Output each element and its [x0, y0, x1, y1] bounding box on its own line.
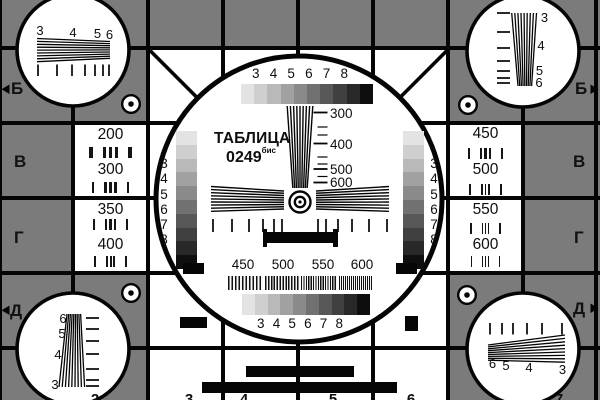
burst-bar — [103, 147, 106, 158]
grid-line-vertical — [221, 0, 225, 400]
cell-label-500: 500 — [448, 162, 523, 178]
grayscale-step — [176, 145, 197, 159]
grayscale-step — [176, 241, 197, 255]
corner-bl-num-6: 6 — [57, 312, 69, 325]
freq-label-550: 550 — [309, 258, 337, 272]
scale-number: 7 — [157, 218, 171, 232]
scale-number: 8 — [157, 233, 171, 247]
right-gray-numbers: 345678 — [427, 157, 441, 247]
column-digit-bottom: 2 — [87, 392, 103, 400]
burst-pattern-500 — [448, 184, 523, 195]
wedge-label-300: 300 — [330, 107, 353, 121]
scale-number: 4 — [157, 172, 171, 186]
grayscale-step — [357, 294, 370, 315]
scale-number: 5 — [157, 188, 171, 202]
grating-500 — [265, 276, 300, 290]
corner-br-num-4: 4 — [523, 361, 535, 374]
column-digit-bottom: 4 — [236, 392, 252, 400]
grayscale-right — [403, 131, 424, 269]
corner-tl-num-5: 5 — [92, 27, 104, 40]
grid-line-vertical — [296, 0, 300, 400]
wedge-label-400: 400 — [330, 138, 353, 152]
wedge-line — [75, 314, 76, 387]
grayscale-step — [403, 241, 424, 255]
burst-bar — [114, 219, 116, 230]
grayscale-step — [242, 294, 255, 315]
bullseye-bottom-right — [458, 286, 476, 304]
grid-line-horizontal — [0, 121, 600, 125]
burst-bar — [500, 184, 502, 195]
card-number-suffix: бис — [262, 146, 276, 155]
burst-bar — [488, 223, 490, 234]
corner-tr-num-6: 6 — [533, 76, 545, 89]
scale-number: 4 — [427, 172, 441, 186]
grayscale-step — [281, 84, 294, 104]
grating-600 — [339, 276, 372, 290]
row-letter-left-g: Г — [14, 229, 24, 246]
burst-bar — [488, 256, 489, 267]
grayscale-step — [403, 214, 424, 228]
burst-bar — [92, 182, 95, 193]
arrow-left-d-icon — [2, 306, 10, 316]
corner-tl-num-4: 4 — [67, 26, 79, 39]
cell-label-600: 600 — [448, 237, 523, 253]
burst-bar — [482, 256, 483, 267]
grayscale-step — [403, 172, 424, 186]
grid-line-vertical — [521, 0, 525, 400]
grayscale-step — [403, 159, 424, 173]
bullseye-top-left — [122, 95, 140, 113]
burst-pattern-350 — [73, 219, 148, 230]
burst-bar — [125, 256, 127, 267]
corner-bl-num-4: 4 — [52, 348, 64, 361]
burst-bar — [109, 182, 112, 193]
grayscale-step — [403, 200, 424, 214]
scale-number: 3 — [252, 67, 260, 81]
burst-bar — [481, 184, 483, 195]
corner-tr-num-4: 4 — [535, 39, 547, 52]
burst-bar — [110, 256, 112, 267]
grid-line-horizontal — [0, 346, 600, 350]
burst-bar — [115, 147, 118, 158]
grayscale-left — [176, 131, 197, 269]
scale-number: 4 — [270, 67, 278, 81]
grayscale-step — [176, 159, 197, 173]
row-letter-right-v: В — [573, 153, 585, 170]
black-rect-left-lower — [180, 317, 207, 328]
burst-bar — [104, 182, 107, 193]
grayscale-step — [176, 172, 197, 186]
burst-bar — [113, 256, 115, 267]
burst-bar — [106, 256, 108, 267]
cell-label-450: 450 — [448, 126, 523, 142]
scale-number: 3 — [427, 157, 441, 171]
burst-bar — [470, 223, 472, 234]
wedge-line — [79, 314, 82, 387]
center-bar-cap-right — [333, 229, 338, 247]
scale-number: 5 — [287, 67, 295, 81]
grayscale-step — [280, 294, 293, 315]
grayscale-step — [320, 84, 333, 104]
grayscale-step — [306, 294, 319, 315]
column-digit-top: 2 — [102, 0, 118, 3]
burst-bar — [93, 219, 95, 230]
burst-bar — [485, 184, 487, 195]
scale-number: 7 — [427, 218, 441, 232]
black-square-left-mid — [183, 263, 204, 274]
burst-bar — [488, 184, 490, 195]
grayscale-step — [403, 131, 424, 145]
burst-bar — [109, 219, 111, 230]
arrow-left-b-icon — [2, 85, 10, 95]
column-digit-bottom: 3 — [181, 392, 197, 400]
wedge-line — [81, 314, 85, 387]
corner-br-num-6: 6 — [487, 357, 499, 370]
corner-tr-num-3: 3 — [539, 11, 551, 24]
grayscale-step — [347, 84, 360, 104]
bottom-scale-numbers: 345678 — [257, 317, 343, 331]
freq-label-500: 500 — [269, 258, 297, 272]
card-title-block: ТАБЛИЦА 0249бис — [214, 131, 288, 166]
bullseye-top-right — [459, 96, 477, 114]
corner-br-num-3: 3 — [557, 363, 569, 376]
grid-line-vertical — [594, 0, 598, 400]
burst-pattern-550 — [448, 223, 523, 234]
burst-bar — [482, 223, 484, 234]
burst-bar — [485, 256, 486, 267]
grayscale-step — [254, 84, 267, 104]
cell-label-300: 300 — [73, 162, 148, 178]
grid-line-vertical — [71, 0, 75, 400]
top-scale-numbers: 345678 — [252, 67, 348, 81]
burst-bar — [94, 256, 96, 267]
column-digit-bottom: 6 — [403, 392, 419, 400]
row-letter-left-d: Д — [10, 302, 22, 319]
scale-number: 7 — [323, 67, 331, 81]
grid-line-horizontal — [0, 196, 600, 200]
grating-450 — [228, 276, 263, 290]
grayscale-step — [176, 186, 197, 200]
burst-bar — [501, 148, 503, 159]
burst-bar — [128, 147, 131, 158]
grayscale-step — [403, 145, 424, 159]
grid-line-horizontal — [0, 271, 600, 275]
grayscale-step — [255, 294, 268, 315]
wedge-line — [488, 355, 565, 356]
corner-br-num-5: 5 — [500, 359, 512, 372]
grayscale-step — [293, 294, 306, 315]
row-letter-right-b: Б — [575, 80, 587, 97]
cell-label-350: 350 — [73, 202, 148, 218]
grid-line-vertical — [146, 0, 150, 400]
burst-bar — [480, 148, 482, 159]
column-digit-top: 6 — [402, 0, 418, 3]
row-letter-left-b: Б — [11, 80, 23, 97]
scale-number: 6 — [157, 203, 171, 217]
wedge-line — [488, 335, 565, 345]
scale-number: 3 — [257, 317, 265, 331]
cell-label-200: 200 — [73, 127, 148, 143]
wedge-line — [77, 314, 78, 387]
scale-number: 5 — [288, 317, 296, 331]
scale-number: 8 — [427, 233, 441, 247]
grid-line-vertical — [0, 0, 2, 400]
grayscale-step — [176, 214, 197, 228]
cell-label-550: 550 — [448, 202, 523, 218]
corner-bl-num-5: 5 — [56, 327, 68, 340]
grayscale-step — [268, 294, 281, 315]
card-title: ТАБЛИЦА — [214, 131, 288, 147]
scale-number: 6 — [304, 317, 312, 331]
center-bar-cap-left — [263, 229, 268, 247]
burst-bar — [499, 256, 500, 267]
left-gray-numbers: 345678 — [157, 157, 171, 247]
scale-number: 8 — [335, 317, 343, 331]
burst-bar — [126, 219, 128, 230]
column-digit-top: 5 — [327, 0, 343, 3]
freq-label-450: 450 — [229, 258, 257, 272]
burst-bar — [105, 219, 107, 230]
bullseye-bottom-left — [122, 284, 140, 302]
corner-bl-num-3: 3 — [49, 378, 61, 391]
burst-bar — [484, 148, 486, 159]
cell-label-400: 400 — [73, 237, 148, 253]
center-black-bar — [263, 232, 337, 243]
bottom-black-bar-long — [202, 382, 397, 393]
grayscale-step — [344, 294, 357, 315]
scale-number: 8 — [340, 67, 348, 81]
grayscale-top — [241, 84, 373, 104]
burst-bar — [114, 182, 117, 193]
burst-pattern-450 — [448, 148, 523, 159]
row-letter-left-v: В — [14, 153, 26, 170]
black-square-right-mid — [396, 263, 417, 274]
wedge-label-600: 600 — [330, 176, 353, 190]
grayscale-step — [332, 294, 345, 315]
burst-bar — [499, 223, 501, 234]
grayscale-step — [360, 84, 373, 104]
bottom-black-bar-short — [246, 366, 354, 377]
grayscale-step — [319, 294, 332, 315]
column-digit-top: 7 — [477, 0, 493, 3]
test-card-canvas: ТАБЛИЦА 0249бис Б В Г Д Б В Г Д 200 300 … — [0, 0, 600, 400]
burst-bar — [468, 148, 470, 159]
burst-pattern-300 — [73, 182, 148, 193]
burst-bar — [485, 223, 487, 234]
grayscale-step — [176, 228, 197, 242]
corner-tl-num-6: 6 — [104, 28, 116, 41]
corner-tl-num-3: 3 — [34, 24, 46, 37]
grayscale-step — [176, 131, 197, 145]
wedge-line — [488, 352, 565, 355]
burst-pattern-600 — [448, 256, 523, 267]
column-digit-bottom: 5 — [325, 392, 341, 400]
burst-bar — [89, 147, 92, 158]
grayscale-step — [307, 84, 320, 104]
burst-bar — [109, 147, 112, 158]
row-letter-right-d: Д — [573, 300, 585, 317]
grid-line-vertical — [371, 0, 375, 400]
column-digit-top: 3 — [178, 0, 194, 3]
grayscale-step — [333, 84, 346, 104]
scale-number: 7 — [320, 317, 328, 331]
grating-550 — [301, 276, 337, 290]
scale-number: 5 — [427, 188, 441, 202]
card-number-text: 0249 — [226, 149, 262, 166]
row-letter-right-g: Г — [574, 229, 584, 246]
scale-number: 6 — [427, 203, 441, 217]
freq-label-600: 600 — [348, 258, 376, 272]
column-digit-bottom: 7 — [551, 392, 567, 400]
burst-bar — [469, 184, 471, 195]
burst-bar — [489, 148, 491, 159]
grid-line-vertical — [446, 0, 450, 400]
grayscale-step — [403, 228, 424, 242]
burst-pattern-200 — [73, 147, 148, 158]
grayscale-step — [267, 84, 280, 104]
burst-bar — [127, 182, 130, 193]
grayscale-step — [176, 200, 197, 214]
burst-bar — [471, 256, 472, 267]
card-number: 0249бис — [214, 150, 288, 166]
grayscale-step — [294, 84, 307, 104]
grayscale-step — [241, 84, 254, 104]
column-digit-top: 4 — [253, 0, 269, 3]
burst-pattern-400 — [73, 256, 148, 267]
grayscale-step — [403, 186, 424, 200]
grid-line-horizontal — [0, 46, 600, 50]
grayscale-bottom — [242, 294, 370, 315]
black-square-right-lower — [405, 316, 418, 331]
scale-number: 6 — [305, 67, 313, 81]
scale-number: 3 — [157, 157, 171, 171]
scale-number: 4 — [273, 317, 281, 331]
